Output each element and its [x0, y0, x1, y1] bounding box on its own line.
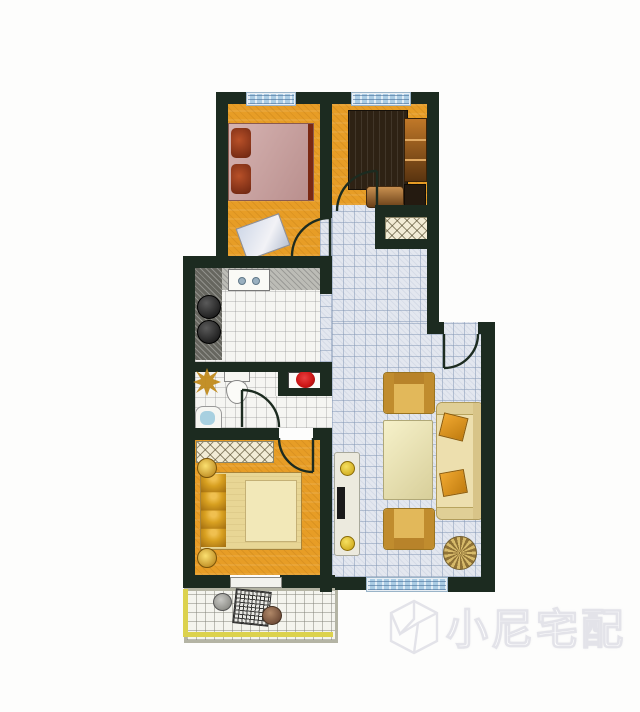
coffee-table: [383, 420, 433, 500]
armchair-arm: [384, 509, 394, 549]
wall-bathroom-right: [320, 362, 332, 396]
wall-master-top-left: [183, 428, 279, 440]
bedroom-2-window: [247, 93, 295, 105]
kitchen-doorway-floor: [320, 294, 332, 362]
bed-pillow: [231, 128, 251, 158]
sofa: [436, 402, 484, 520]
armchair: [383, 508, 435, 550]
balcony-accent-bottom: [183, 632, 333, 637]
toilet: [222, 370, 252, 404]
wall-between-bedrooms: [320, 104, 332, 218]
cube-n-logo-icon: [388, 598, 440, 656]
wall-bedroom2-bottom: [183, 256, 332, 268]
wall-kitchen-right: [320, 268, 332, 294]
shelf-line: [405, 159, 426, 161]
faucet: [238, 277, 246, 285]
stove-burner: [197, 320, 221, 344]
sofa-armrest: [437, 403, 473, 415]
tv-cabinet: [334, 452, 360, 556]
wall-left-upper: [216, 92, 228, 268]
balcony-accent-left: [183, 589, 188, 636]
wall-left-main: [183, 256, 195, 588]
study-wardrobe: [348, 110, 408, 190]
sofa-pillow: [438, 412, 468, 441]
master-bed-pillows: [201, 474, 226, 547]
faucet: [252, 277, 260, 285]
bathtub-water: [200, 411, 215, 425]
armchair: [383, 372, 435, 414]
study-window: [352, 93, 410, 105]
corridor-floor: [246, 396, 332, 428]
sofa-pillow: [439, 469, 468, 497]
nightstand-lamp: [197, 458, 217, 478]
bedroom-2-doorway-floor: [320, 218, 332, 256]
wall-right-lower: [481, 322, 495, 590]
balcony-pot-brown: [262, 606, 282, 625]
balcony-pot-gray: [213, 593, 232, 611]
wall-entry-jut-left: [433, 322, 444, 334]
hall-closet: [385, 217, 429, 241]
shelf-line: [405, 139, 426, 141]
armchair-arm: [424, 509, 434, 549]
living-room-plant: [443, 536, 477, 570]
watermark: 小尼宅配: [388, 596, 626, 657]
bed-footboard: [308, 124, 313, 200]
living-room-window: [367, 578, 447, 591]
wall-study-bottom: [377, 205, 439, 217]
wall-master-right: [320, 428, 332, 592]
stove-burner: [197, 295, 221, 319]
master-bed-quilt: [245, 480, 297, 542]
kitchen-sink: [228, 269, 270, 291]
sofa-armrest: [437, 507, 473, 519]
tv-speaker: [340, 461, 355, 476]
wall-living-bottom-left: [335, 577, 367, 590]
bedroom-2-bed: [228, 123, 314, 201]
armchair-arm: [424, 373, 434, 413]
watermark-text: 小尼宅配: [446, 596, 626, 657]
toilet-bowl: [226, 380, 248, 404]
master-bed: [200, 472, 302, 550]
wall-master-bottom-left: [183, 575, 230, 588]
nightstand-lamp: [197, 548, 217, 568]
bed-pillow: [231, 164, 251, 194]
tv-screen: [337, 487, 345, 519]
tv-speaker: [340, 536, 355, 551]
red-flower: [296, 371, 315, 388]
balcony-door: [230, 577, 282, 588]
wall-closet-bottom: [375, 239, 439, 249]
armchair-arm: [384, 373, 394, 413]
floor-plan: 小尼宅配: [0, 0, 640, 712]
wall-master-bottom-right: [280, 575, 335, 588]
study-shelf: [404, 118, 427, 182]
wall-bathroom-top: [183, 362, 332, 372]
